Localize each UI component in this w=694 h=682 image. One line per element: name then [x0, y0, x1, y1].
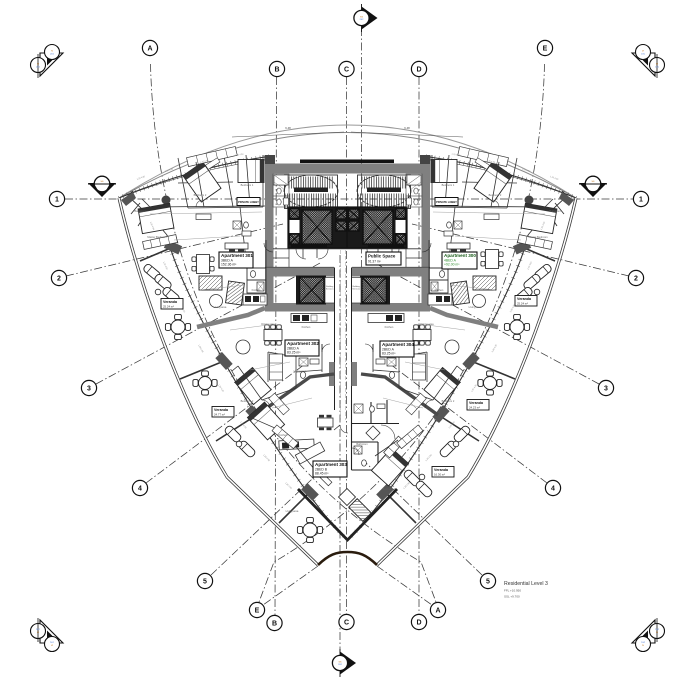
svg-text:83.25 m²: 83.25 m²: [287, 351, 301, 355]
svg-text:Dining area: Dining area: [420, 322, 434, 326]
svg-text:1: 1: [639, 196, 643, 203]
svg-text:Apartment 300: Apartment 300: [444, 253, 476, 258]
svg-text:24.23 m²: 24.23 m²: [469, 405, 480, 409]
svg-text:Bedroom 2: Bedroom 2: [194, 193, 207, 197]
svg-text:Kitchen: Kitchen: [302, 325, 311, 329]
svg-text:Services: Services: [326, 289, 334, 291]
svg-text:2: 2: [634, 275, 638, 282]
svg-text:2: 2: [57, 275, 61, 282]
svg-text:Bedroom 2: Bedroom 2: [241, 399, 254, 403]
svg-text:Apartment 303: Apartment 303: [315, 462, 347, 467]
svg-text:6.48: 6.48: [404, 126, 410, 130]
svg-text:83.25 m²: 83.25 m²: [382, 352, 396, 356]
svg-text:91.37 m²: 91.37 m²: [368, 260, 381, 264]
svg-text:Bathroom: Bathroom: [356, 442, 367, 446]
svg-text:Apartment 301: Apartment 301: [221, 253, 253, 258]
svg-text:E: E: [543, 45, 548, 52]
svg-text:Living area: Living area: [469, 305, 482, 309]
svg-text:25.24 m²: 25.24 m²: [163, 304, 174, 308]
svg-text:88.45 m²: 88.45 m²: [315, 472, 329, 476]
svg-text:1: 1: [55, 196, 59, 203]
svg-text:24.77 m²: 24.77 m²: [214, 412, 225, 416]
svg-text:Services: Services: [352, 289, 360, 291]
svg-text:4: 4: [551, 485, 555, 492]
svg-text:3: 3: [604, 385, 608, 392]
svg-text:A: A: [147, 45, 152, 52]
svg-text:6.48: 6.48: [285, 126, 291, 130]
svg-text:Bedroom 2: Bedroom 2: [442, 399, 455, 403]
svg-text:3: 3: [87, 385, 91, 392]
svg-text:Bedroom 2: Bedroom 2: [489, 193, 502, 197]
svg-text:Kitchen: Kitchen: [252, 288, 261, 292]
svg-text:16.30 m²: 16.30 m²: [434, 472, 445, 476]
svg-text:B: B: [274, 66, 279, 73]
svg-text:Apartment 304: Apartment 304: [382, 342, 414, 347]
svg-text:Bathroom: Bathroom: [134, 209, 145, 213]
svg-text:B: B: [272, 620, 277, 627]
svg-text:+92.00 m²: +92.00 m²: [444, 263, 460, 267]
svg-text:Kitchen: Kitchen: [279, 433, 288, 437]
svg-text:Living area: Living area: [286, 509, 299, 513]
svg-text:Bathroom: Bathroom: [549, 209, 560, 213]
svg-text:Public Space: Public Space: [368, 254, 396, 259]
svg-text:Dining area: Dining area: [261, 322, 275, 326]
svg-text:25.24 m²: 25.24 m²: [517, 301, 528, 305]
svg-text:C: C: [344, 66, 349, 73]
svg-text:Kitchen: Kitchen: [385, 325, 394, 329]
svg-text:C: C: [344, 619, 349, 626]
svg-text:4: 4: [138, 485, 142, 492]
svg-text:E: E: [255, 607, 260, 614]
svg-text:FFL +10.950: FFL +10.950: [504, 589, 521, 593]
svg-text:Living area: Living area: [294, 369, 307, 373]
svg-text:Master Bedroom: Master Bedroom: [147, 235, 166, 239]
svg-text:Living area: Living area: [214, 305, 227, 309]
svg-text:D: D: [416, 619, 421, 626]
svg-text:D: D: [416, 66, 421, 73]
svg-text:152.36 m²: 152.36 m²: [221, 263, 237, 267]
svg-text:5: 5: [203, 578, 207, 585]
svg-text:Kitchen: Kitchen: [435, 288, 444, 292]
svg-text:Apartment 302: Apartment 302: [287, 341, 319, 346]
svg-text:PRIVATE LOBBY: PRIVATE LOBBY: [436, 200, 457, 204]
svg-text:Bedroom 1: Bedroom 1: [442, 183, 455, 187]
svg-text:5: 5: [486, 578, 490, 585]
svg-text:PRIVATE LOBBY: PRIVATE LOBBY: [238, 200, 259, 204]
svg-text:Master Bedroom: Master Bedroom: [528, 235, 547, 239]
svg-text:Bedroom 1: Bedroom 1: [241, 183, 254, 187]
svg-text:Residential Level 3: Residential Level 3: [504, 581, 548, 587]
svg-text:A: A: [435, 607, 440, 614]
svg-text:SSL +9.700: SSL +9.700: [504, 595, 520, 599]
svg-text:Bedroom 2: Bedroom 2: [383, 487, 396, 491]
